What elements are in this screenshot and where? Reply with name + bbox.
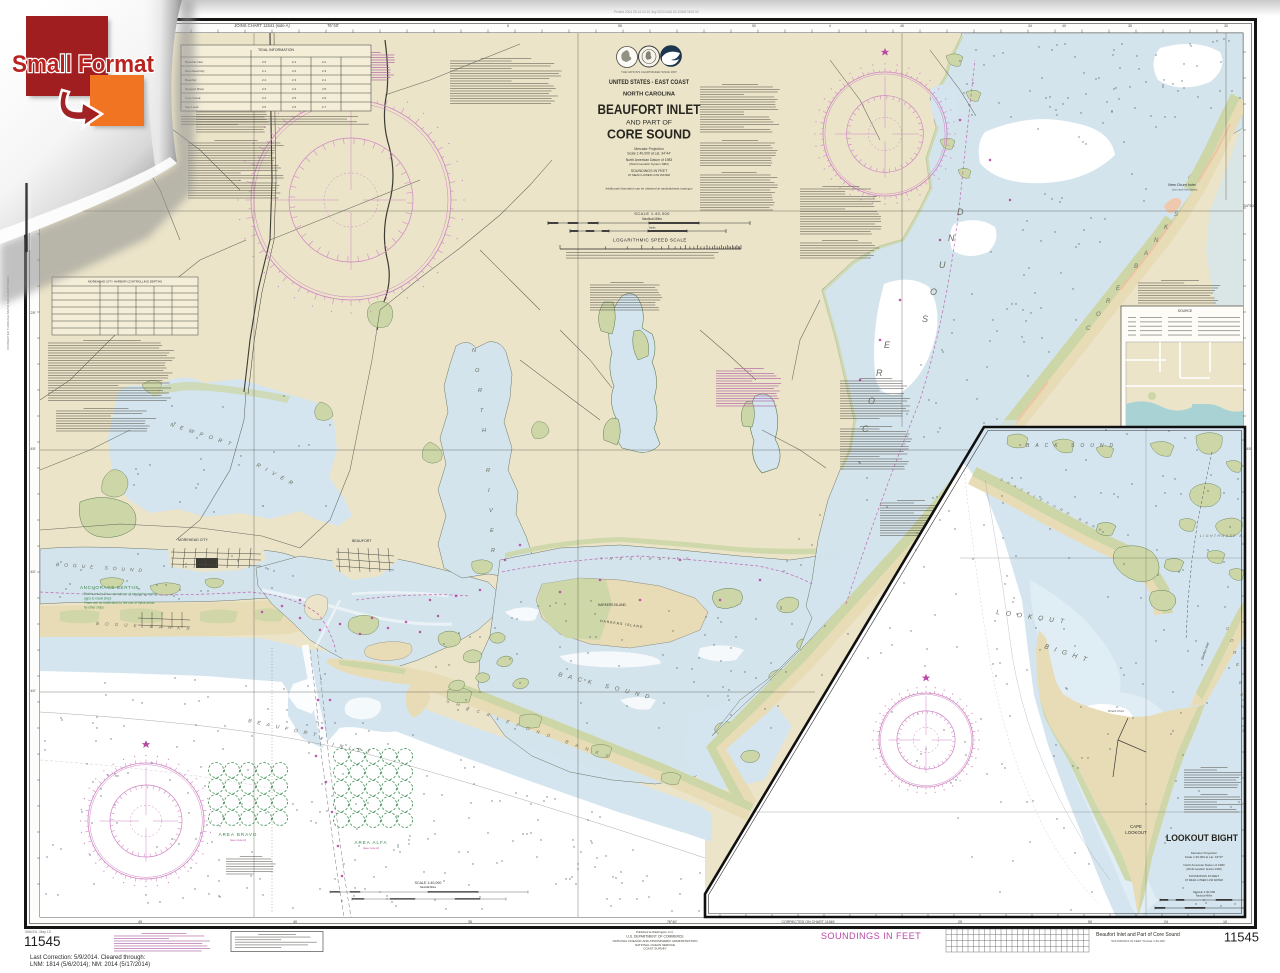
svg-text:TIDAL INFORMATION: TIDAL INFORMATION: [258, 48, 294, 52]
svg-text:35: 35: [468, 920, 472, 924]
svg-text:Beaufort Inlet and Part of Cor: Beaufort Inlet and Part of Core Sound: [1096, 932, 1180, 938]
svg-text:C: C: [1086, 326, 1091, 332]
svg-text:MOREHEAD CITY: MOREHEAD CITY: [178, 538, 209, 542]
svg-text:30: 30: [1224, 24, 1228, 28]
svg-text:40: 40: [1062, 24, 1066, 28]
svg-text:C: C: [862, 424, 869, 434]
svg-text:SCALE 1:40,000: SCALE 1:40,000: [415, 881, 442, 885]
svg-text:JOINS CHART 11541 (side A): JOINS CHART 11541 (side A): [234, 23, 290, 28]
svg-text:New Drum Inlet: New Drum Inlet: [1168, 182, 1196, 187]
svg-text:O: O: [1096, 312, 1101, 318]
svg-text:SOURCE: SOURCE: [1178, 309, 1193, 313]
svg-text:2.6: 2.6: [322, 96, 327, 100]
svg-text:2.0: 2.0: [262, 60, 267, 64]
svg-text:24: 24: [1164, 920, 1168, 924]
svg-text:A: A: [1143, 251, 1148, 257]
svg-text:LOOKOUT BIGHT: LOOKOUT BIGHT: [1166, 833, 1238, 843]
svg-text:North American Datum of 1983: North American Datum of 1983: [1183, 863, 1225, 867]
svg-text:Scale 1:30,000 at Lat. 34°37': Scale 1:30,000 at Lat. 34°37': [1185, 855, 1224, 859]
svg-text:AT MEAN LOWER LOW WATER: AT MEAN LOWER LOW WATER: [1185, 878, 1223, 882]
svg-text:THE NATION'S CHARTMAKER SINCE: THE NATION'S CHARTMAKER SINCE 1807: [621, 70, 677, 74]
svg-text:(World Geodetic System 1984): (World Geodetic System 1984): [629, 162, 669, 166]
svg-text:O: O: [930, 287, 937, 297]
svg-text:Printed 2014 05-14 10:10 Ju: Printed 2014 05-14 10:10 July 2013 NAD 8…: [614, 10, 699, 14]
svg-text:B: B: [1134, 264, 1138, 270]
svg-text:SCALE 1:30,000: SCALE 1:30,000: [1193, 890, 1216, 894]
svg-text:2.4: 2.4: [322, 78, 327, 82]
svg-text:11545: 11545: [24, 934, 61, 949]
svg-text:LOGARITHMIC SPEED SCALE: LOGARITHMIC SPEED SCALE: [613, 238, 687, 243]
svg-text:Yards: Yards: [648, 226, 656, 230]
svg-text:Additional information can be: Additional information can be obtained a…: [606, 187, 693, 191]
svg-text:HARKERS ISLAND: HARKERS ISLAND: [598, 603, 627, 607]
svg-text:2.3: 2.3: [262, 87, 267, 91]
svg-text:UNITED STATES - EAST COAST: UNITED STATES - EAST COAST: [609, 79, 689, 86]
svg-text:76°40': 76°40': [667, 920, 677, 924]
svg-text:76°40': 76°40': [327, 23, 339, 28]
svg-text:CORE SOUND: CORE SOUND: [607, 128, 691, 142]
svg-text:T: T: [480, 408, 484, 414]
svg-text:LOOKOUT: LOOKOUT: [1125, 830, 1147, 835]
svg-text:N: N: [948, 233, 955, 243]
svg-text:25: 25: [958, 920, 962, 924]
svg-text:R: R: [478, 388, 482, 394]
svg-text:2.6: 2.6: [292, 105, 297, 109]
svg-text:(see note A): (see note A): [363, 846, 379, 850]
svg-text:NORTH CAROLINA: NORTH CAROLINA: [623, 92, 675, 98]
svg-text:40: 40: [293, 920, 297, 924]
svg-text:2.3: 2.3: [292, 78, 297, 82]
svg-text:Last Correction: 5/9/2014. Cl: Last Correction: 5/9/2014. Cleared throu…: [30, 955, 146, 961]
svg-text:40': 40': [30, 569, 35, 574]
svg-text:R: R: [1106, 299, 1111, 305]
svg-text:R: R: [486, 468, 490, 474]
svg-text:55: 55: [618, 24, 622, 28]
svg-text:2.5: 2.5: [322, 87, 327, 91]
svg-text:45': 45': [30, 446, 35, 451]
svg-text:(not much from boats): (not much from boats): [1172, 188, 1198, 192]
svg-text:CORRECTED ON CHART 11545: CORRECTED ON CHART 11545: [781, 920, 834, 924]
svg-text:AT MEAN LOWER LOW WATER: AT MEAN LOWER LOW WATER: [628, 173, 670, 177]
svg-text:E: E: [490, 528, 494, 534]
svg-text:Berths are for the convenience: Berths are for the convenience of easygo…: [84, 592, 158, 596]
svg-text:by other ships: by other ships: [84, 606, 104, 610]
svg-text:(World Geodetic System 1984): (World Geodetic System 1984): [1186, 867, 1222, 871]
svg-text:2.5: 2.5: [292, 96, 297, 100]
svg-text:2.4: 2.4: [292, 87, 297, 91]
svg-text:O: O: [868, 396, 875, 406]
svg-text:LIGHTHOUSE BAY: LIGHTHOUSE BAY: [1200, 534, 1251, 538]
svg-text:45: 45: [138, 920, 142, 924]
svg-text:15: 15: [1223, 920, 1227, 924]
svg-text:O: O: [475, 368, 480, 374]
svg-text:11545: 11545: [1224, 930, 1259, 945]
svg-text:COAST SURVEY: COAST SURVEY: [643, 947, 666, 951]
svg-text:AND PART OF: AND PART OF: [626, 121, 672, 127]
svg-text:R: R: [876, 368, 883, 378]
svg-text:CAPE: CAPE: [1130, 824, 1142, 829]
svg-text:5: 5: [507, 24, 509, 28]
svg-text:E: E: [884, 340, 891, 350]
svg-text:2.1: 2.1: [292, 60, 297, 64]
svg-text:35: 35: [1128, 24, 1132, 28]
svg-text:O: O: [1230, 638, 1234, 643]
svg-text:4: 4: [829, 24, 831, 28]
svg-text:N: N: [1154, 238, 1159, 244]
svg-text:T H E S T R A I T S: T H E S T R A I T S: [600, 556, 692, 561]
svg-text:S: S: [1174, 212, 1178, 218]
svg-text:AREA ALFA: AREA ALFA: [354, 840, 387, 845]
svg-text:Mercator Projection: Mercator Projection: [634, 147, 664, 151]
svg-text:D: D: [957, 207, 964, 217]
svg-text:BEAUFORT: BEAUFORT: [352, 539, 372, 543]
svg-text:AREA BRAVO: AREA BRAVO: [219, 832, 258, 837]
svg-text:2.2: 2.2: [292, 69, 297, 73]
svg-text:Published at Washington, D.C.: Published at Washington, D.C.: [636, 930, 674, 934]
svg-text:U: U: [939, 260, 946, 270]
svg-text:50: 50: [1088, 920, 1092, 924]
svg-text:SOUNDINGS IN FEET: SOUNDINGS IN FEET: [821, 931, 921, 941]
svg-text:45: 45: [900, 24, 904, 28]
svg-text:2.2: 2.2: [322, 60, 327, 64]
svg-text:2.7: 2.7: [322, 105, 327, 109]
svg-text:apps to naval ships: apps to naval ships: [84, 597, 112, 601]
svg-text:(see note A): (see note A): [230, 838, 246, 842]
svg-text:25': 25': [30, 310, 35, 315]
svg-text:MOREHEAD CITY HARBOR CONTROLL: MOREHEAD CITY HARBOR CONTROLLING DEPTHS: [88, 280, 162, 284]
svg-text:40': 40': [30, 688, 35, 693]
svg-text:2.1: 2.1: [262, 69, 267, 73]
svg-text:S: S: [922, 314, 928, 324]
svg-text:34°50': 34°50': [1243, 203, 1254, 208]
svg-text:2.5: 2.5: [262, 105, 267, 109]
svg-text:R: R: [491, 548, 495, 554]
svg-text:LNM: 1814 (5/6/2014); NM: 2014: LNM: 1814 (5/6/2014); NM: 2014 (5/17/201…: [30, 962, 150, 968]
svg-text:Nautical Miles: Nautical Miles: [642, 217, 662, 221]
svg-text:SOUNDINGS IN FEET: SOUNDINGS IN FEET: [1189, 874, 1220, 878]
svg-text:Nautical Miles: Nautical Miles: [1196, 894, 1213, 898]
svg-text:ANCHORAGE BERTHS: ANCHORAGE BERTHS: [80, 585, 139, 590]
svg-text:There are no restrictions to t: There are no restrictions to the use of …: [84, 601, 155, 605]
svg-text:SCALE 1:40,000: SCALE 1:40,000: [634, 211, 670, 216]
svg-text:BEAUFORT INLET: BEAUFORT INLET: [598, 102, 702, 117]
svg-text:Scale 1:40,000 at Lat. 34°44': Scale 1:40,000 at Lat. 34°44': [627, 152, 671, 156]
svg-text:2.3: 2.3: [322, 69, 327, 73]
svg-text:Wreck Point: Wreck Point: [1108, 709, 1124, 713]
svg-text:34: 34: [1028, 24, 1032, 28]
svg-text:BACK SOUND: BACK SOUND: [1026, 443, 1119, 449]
svg-text:Small Format: Small Format: [12, 51, 154, 78]
svg-text:2.4: 2.4: [262, 96, 267, 100]
svg-text:A: A: [1239, 692, 1243, 697]
svg-text:2.2: 2.2: [262, 78, 267, 82]
svg-text:45': 45': [1246, 446, 1251, 451]
svg-text:50: 50: [752, 24, 756, 28]
svg-text:SOUNDINGS IN FEET SCALE 1:4: SOUNDINGS IN FEET SCALE 1:40,000: [1111, 939, 1165, 943]
